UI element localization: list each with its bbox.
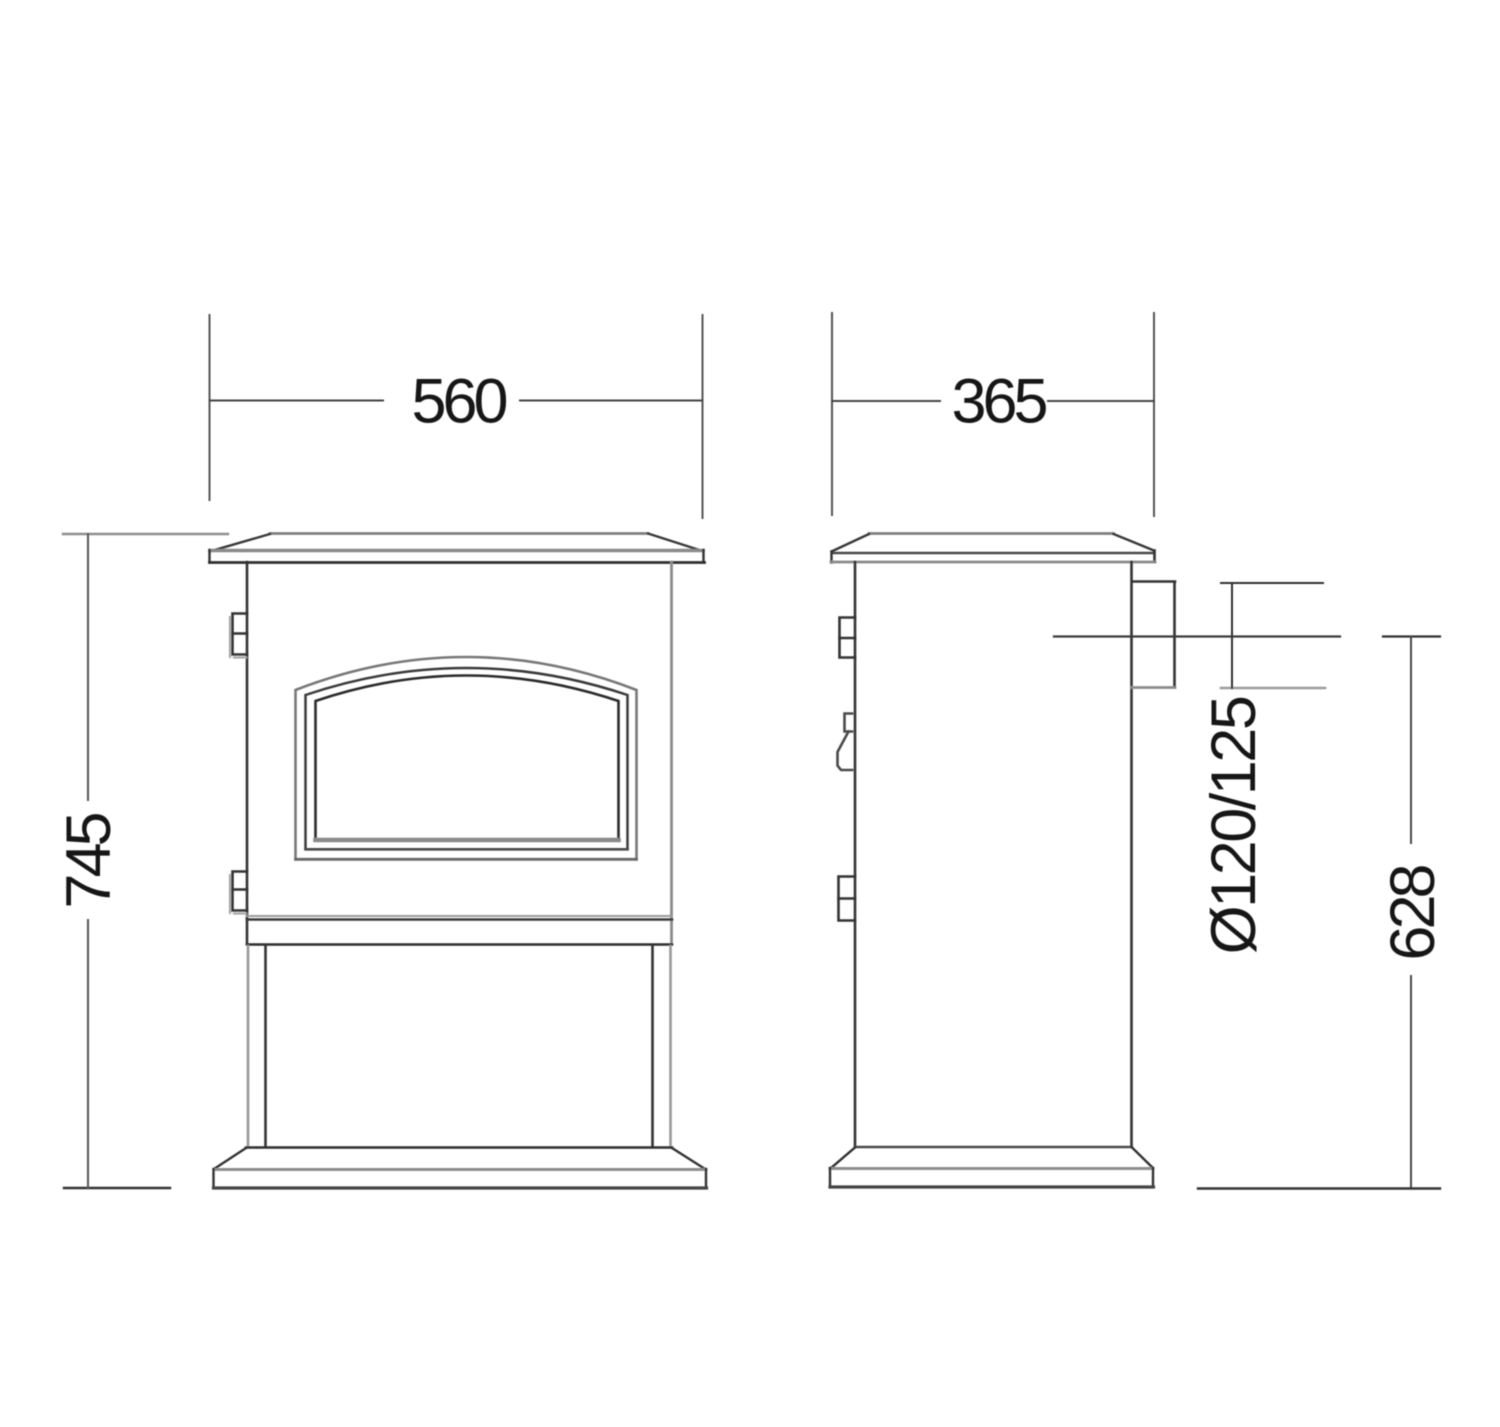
svg-text:628: 628: [1378, 865, 1448, 960]
svg-text:Ø120/125: Ø120/125: [1199, 697, 1269, 954]
svg-text:745: 745: [54, 813, 124, 908]
svg-text:365: 365: [951, 367, 1046, 437]
svg-text:560: 560: [411, 367, 506, 437]
